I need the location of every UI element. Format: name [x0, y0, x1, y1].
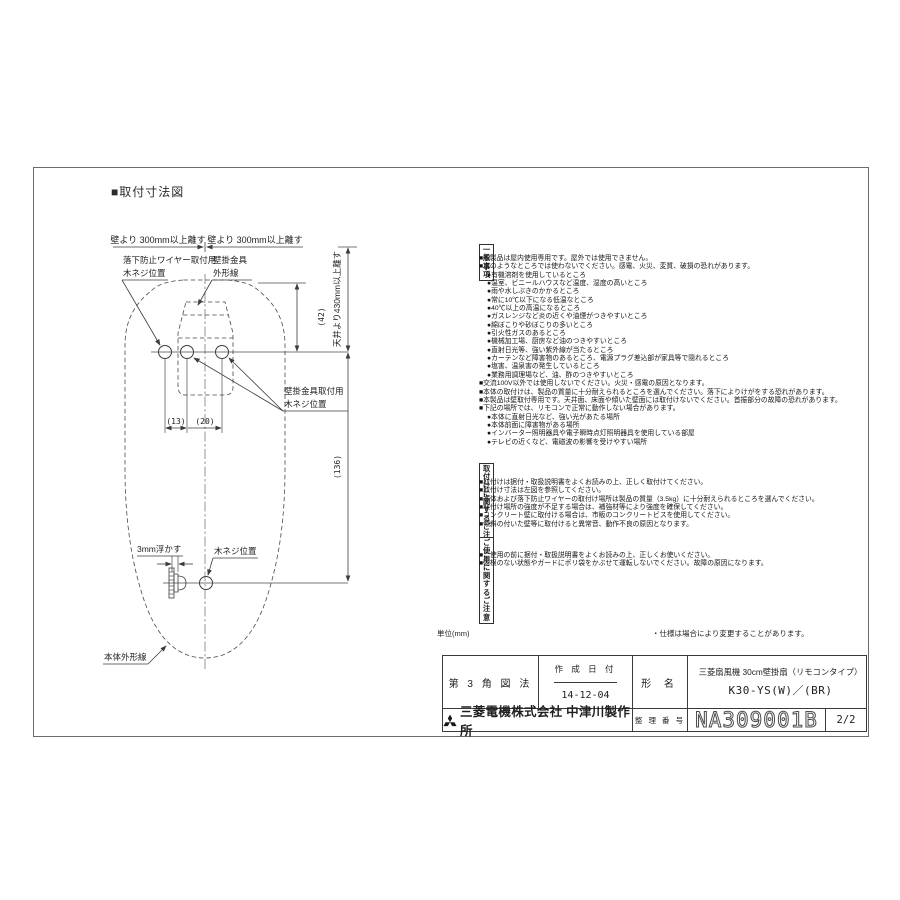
model-label-cell: 形 名 [632, 655, 688, 709]
note-line: ■本体および落下防止ワイヤーの取付け場所は製品の質量（3.5kg）に十分耐えられ… [479, 496, 819, 504]
product-name: 三菱扇風機 30cm壁掛扇（リモコンタイプ） [699, 666, 863, 678]
model-number: K30-YS(W)／(BR) [728, 682, 832, 698]
ref-label-cell: 整 理 番 号 [632, 708, 688, 732]
page-number-cell: 2/2 [825, 708, 867, 732]
body-outline-leader [148, 646, 166, 664]
note-line: ●テレビの近くなど、電磁波の影響を受けやすい場所 [487, 439, 842, 447]
installation-dimension-diagram: 壁より 300mm以上離す 壁より 300mm以上離す 落下防止ワイヤー取付用 … [0, 0, 900, 900]
note-line: ■本体の取付けは、製品の質量に十分耐えられるところを選んでください。落下によりけ… [479, 389, 842, 397]
lower-screw-label: 木ネジ位置 [214, 546, 257, 556]
note-line: ●機械加工場、厨房など油のつきやすいところ [487, 338, 842, 346]
note-line: ●有機溶剤を使用しているところ [487, 272, 842, 280]
note-line: ●本体前面に障害物がある場所 [487, 422, 842, 430]
note-line: ●本体に直射日光など、強い光があたる場所 [487, 414, 842, 422]
note-line: ●直射日光等、強い紫外線が当たるところ [487, 347, 842, 355]
clearance-left-label: 壁より 300mm以上離す [110, 234, 205, 245]
bracket-outline-label-2: 外形線 [213, 268, 239, 278]
usage-notes-heading: ご使用に関するご注意 [479, 537, 494, 624]
title-block: 第 3 角 図 法 作 成 日 付 14-12-04 形 名 三菱扇風機 30c… [442, 655, 867, 732]
note-line: ■コンクリート壁に取付ける場合は、市販のコンクリートビスを使用してください。 [479, 512, 819, 520]
bracket-screw-label-1: 壁掛金具取付用 [284, 386, 344, 396]
note-line: ●塩害、温泉害の発生しているところ [487, 363, 842, 371]
note-line: ●ガスレンジなど炎の近くや油煙がつきやすいところ [487, 313, 842, 321]
bracket-screw-leader-2 [229, 358, 283, 411]
note-line: ■本製品は壁取付専用です。天井面、床面や傾いた壁面には取付けないでください。首振… [479, 397, 842, 405]
dim42-value: (42) [317, 307, 326, 326]
ref-number-cell: NA309001B [687, 708, 826, 732]
mitsubishi-three-diamond-logo-icon [443, 714, 457, 727]
lower-screw-leader [208, 558, 213, 575]
spec-change-note: ・仕様は場合により変更することがあります。 [652, 628, 809, 639]
note-line: ●インバーター照明器具や電子瞬時点灯照明器具を使用している部屋 [487, 430, 842, 438]
bracket-outline-shape [178, 302, 233, 395]
bracket-screw-label-2: 木ネジ位置 [284, 399, 327, 409]
wire-screw-leader [122, 280, 160, 345]
note-line: ■次のようなところでは使わないでください。感電、火災、変質、破損の恐れがあります… [479, 263, 842, 271]
usage-notes-list: ■ご使用の前に据付・取扱説明書をよくお読みの上、正しくお使いください。 ■羽根の… [479, 552, 768, 569]
clearance-right-label: 壁より 300mm以上離す [207, 234, 302, 245]
note-line: ●常に10℃以下になる低温なところ [487, 297, 842, 305]
unit-note: 単位(mm) [437, 628, 470, 639]
note-line: ●雨や水しぶきのかかるところ [487, 288, 842, 296]
float-label: 3mm浮かす [137, 544, 181, 554]
product-cell: 三菱扇風機 30cm壁掛扇（リモコンタイプ） K30-YS(W)／(BR) [687, 655, 867, 709]
note-line: ●業務用調理場など、油、酢のつきやすいところ [487, 372, 842, 380]
general-notes-list: ■本製品は屋内使用専用です。屋外では使用できません。 ■次のようなところでは使わ… [479, 255, 842, 447]
wire-screw-label-2: 木ネジ位置 [123, 268, 166, 278]
wire-screw-label-1: 落下防止ワイヤー取付用 [123, 255, 216, 265]
drawing-sheet: ■取付寸法図 壁より 300mm以上離す 壁より 300mm以上離す 落下防止ワ… [0, 0, 900, 900]
pitch13-value: (13) [166, 417, 185, 426]
note-line: ■羽根のない状態やガードにポリ袋をかぶせて運転しないでください。故障の原因になり… [479, 560, 768, 568]
note-line: ■下記の場所では、リモコンで正常に動作しない場合があります。 [479, 405, 842, 413]
note-line: ■交流100V以外では使用しないでください。火災・感電の原因となります。 [479, 380, 842, 388]
bracket-outline-label-1: 壁掛金具 [213, 255, 248, 265]
company-cell: 三菱電機株式会社 中津川製作所 [442, 708, 633, 732]
date-label: 作 成 日 付 [554, 656, 616, 683]
bracket-screw-leader-1 [194, 358, 283, 411]
dim136-value: (136) [333, 455, 342, 479]
note-line: ●綿ぼこりや砂ぼこりの多いところ [487, 322, 842, 330]
clearance-ceiling-label: 天井より430mm以上離す [332, 251, 342, 347]
install-notes-list: ■取付けは据付・取扱説明書をよくお読みの上、正しく取付けてください。 ■取付け寸… [479, 479, 819, 529]
note-line: ■傾斜の付いた壁等に取付けると異常音、動作不良の原因となります。 [479, 521, 819, 529]
body-outline-label: 本体外形線 [104, 652, 147, 662]
company-name: 三菱電機株式会社 中津川製作所 [460, 701, 632, 739]
note-line: ■取付け寸法は左図を参照してください。 [479, 487, 819, 495]
pitch20-value: (20) [195, 417, 214, 426]
